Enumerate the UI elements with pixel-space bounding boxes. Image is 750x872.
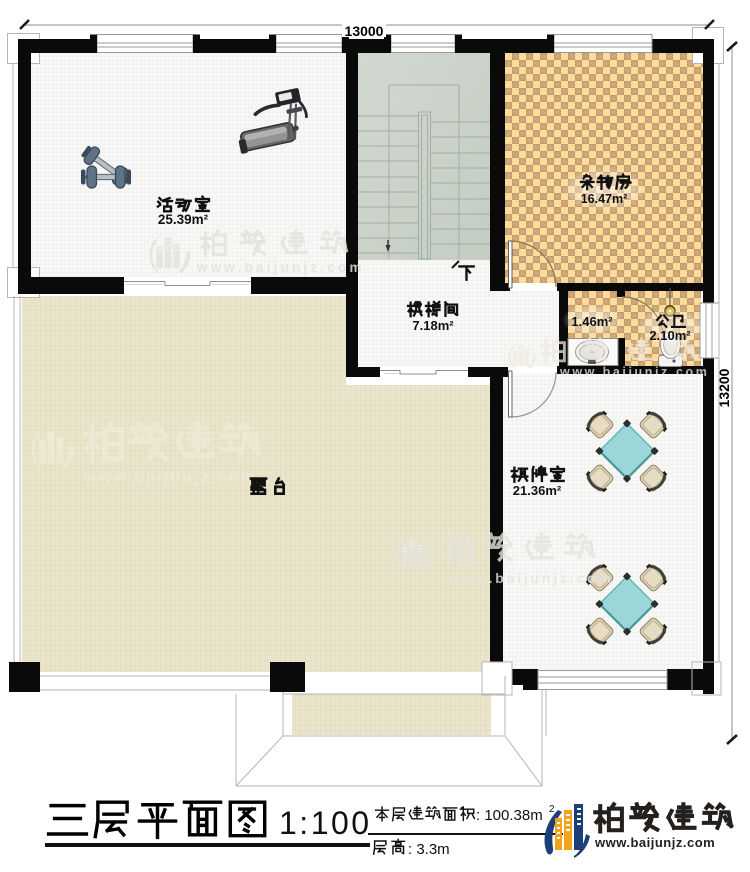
svg-text:21.36m²: 21.36m²: [513, 483, 562, 498]
svg-text:www.baijunjz.com: www.baijunjz.com: [559, 365, 709, 379]
svg-text:www.baijunjz.com: www.baijunjz.com: [196, 260, 365, 275]
svg-text:www.baijunjz.com: www.baijunjz.com: [594, 835, 715, 850]
svg-text:16.47m²: 16.47m²: [581, 192, 628, 206]
svg-text:13000: 13000: [345, 23, 384, 39]
svg-text:13200: 13200: [716, 368, 732, 407]
svg-text:1.46m²: 1.46m²: [571, 314, 613, 329]
svg-text:1:100: 1:100: [279, 805, 372, 841]
svg-text:: 3.3m: : 3.3m: [408, 841, 450, 858]
svg-text:www.baijunjz.com: www.baijunjz.com: [447, 570, 614, 586]
svg-text:2.10m²: 2.10m²: [649, 328, 691, 343]
svg-text:: 100.38m: : 100.38m: [476, 807, 543, 824]
svg-text:2: 2: [549, 804, 555, 815]
svg-text:25.39m²: 25.39m²: [158, 212, 209, 227]
svg-text:7.18m²: 7.18m²: [412, 318, 454, 333]
svg-text:www.baijunjz.com: www.baijunjz.com: [83, 469, 257, 486]
